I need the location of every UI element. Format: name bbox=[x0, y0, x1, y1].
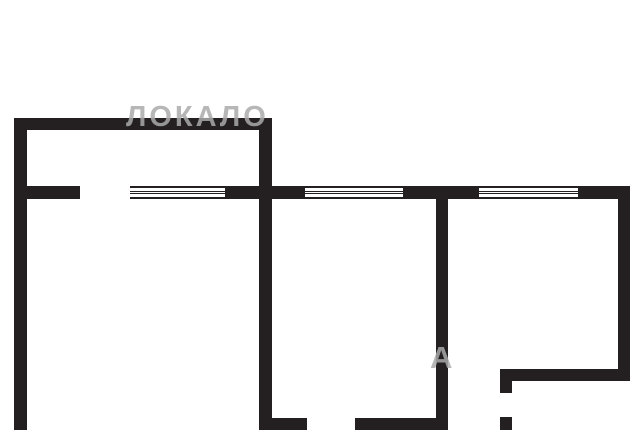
window-right bbox=[479, 186, 578, 199]
lower-right-stub-top bbox=[500, 369, 512, 393]
floorplan: ЛОКАЛО А bbox=[0, 0, 640, 430]
window-middle bbox=[305, 186, 403, 199]
window-left bbox=[130, 186, 225, 199]
right-outer-wall bbox=[618, 186, 630, 381]
mid-wall-left-stub bbox=[14, 186, 80, 199]
watermark-text: ЛОКАЛО bbox=[126, 103, 269, 132]
mid-wall-segment-c bbox=[403, 186, 479, 199]
center-right-wall bbox=[436, 199, 448, 430]
bottom-wall-segment bbox=[355, 418, 448, 430]
left-wall bbox=[14, 118, 27, 430]
mid-wall-segment-b bbox=[225, 186, 305, 199]
center-left-wall-foot bbox=[259, 418, 307, 430]
lower-right-wall bbox=[500, 369, 630, 381]
lower-right-stub-bottom bbox=[500, 417, 512, 430]
watermark-fragment: А bbox=[430, 342, 452, 373]
center-left-wall bbox=[259, 130, 272, 430]
